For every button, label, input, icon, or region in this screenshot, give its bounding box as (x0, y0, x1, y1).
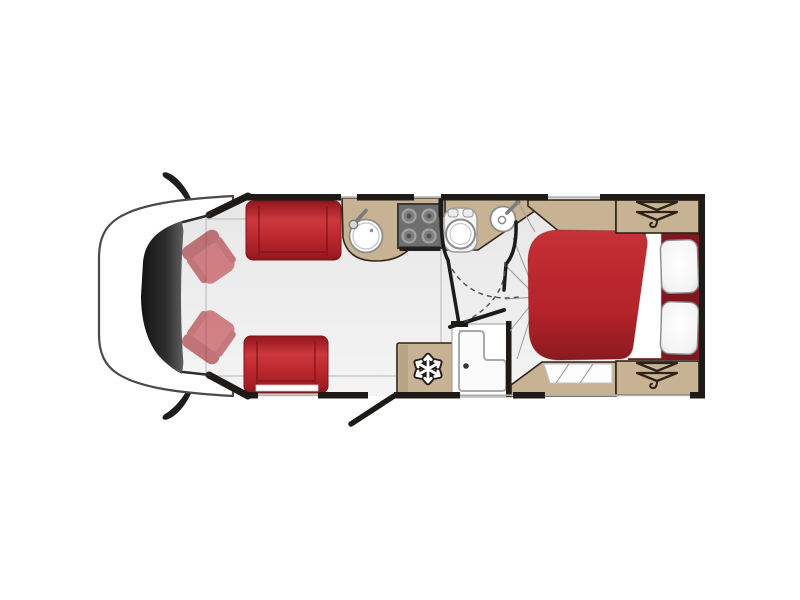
wardrobe-top (616, 200, 699, 233)
seat-base-sill (256, 385, 318, 391)
fridge (397, 343, 455, 395)
motorhome-floorplan (0, 0, 800, 600)
pillow-top (660, 239, 699, 293)
window-opening (545, 394, 690, 396)
hob (398, 204, 442, 251)
floorplan-drawing (0, 0, 800, 600)
window-opening (414, 196, 441, 198)
lounge-seat-bottom (244, 336, 328, 393)
bed-base-panel (544, 364, 612, 383)
lounge-sofa-top (246, 201, 341, 260)
pillow-bottom (660, 301, 699, 354)
toilet (444, 208, 477, 252)
rear-wall (699, 194, 705, 399)
window-opening (258, 394, 318, 396)
double-bed-duvet (528, 230, 647, 360)
wardrobe-bottom (616, 361, 699, 395)
snowflake-icon (417, 356, 440, 382)
window-opening (460, 394, 513, 396)
window-opening (341, 196, 357, 198)
entry-door-open (351, 396, 394, 424)
shower-drain (463, 363, 469, 369)
shower (451, 321, 512, 397)
window-opening (548, 196, 600, 198)
